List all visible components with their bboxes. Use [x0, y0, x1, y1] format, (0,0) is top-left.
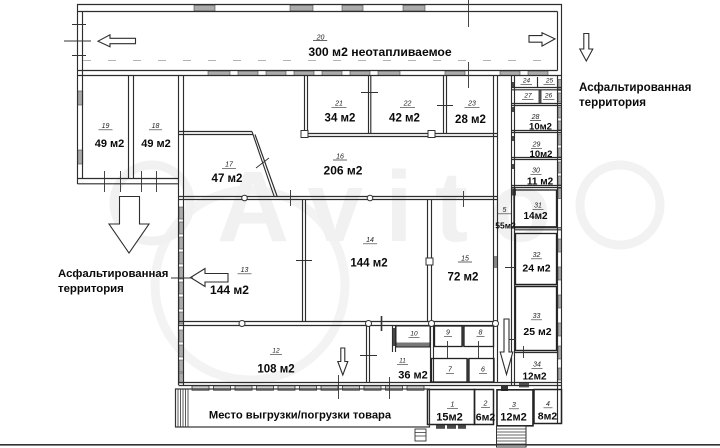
svg-text:10м2: 10м2 — [530, 149, 553, 160]
svg-text:144 м2: 144 м2 — [350, 258, 387, 270]
svg-text:25 м2: 25 м2 — [523, 326, 551, 338]
svg-text:14: 14 — [366, 237, 374, 244]
svg-text:31: 31 — [534, 203, 542, 210]
svg-text:6: 6 — [481, 367, 485, 374]
svg-text:36 м2: 36 м2 — [398, 370, 428, 382]
svg-text:19: 19 — [102, 123, 110, 130]
svg-text:23: 23 — [467, 101, 476, 108]
svg-text:1: 1 — [451, 402, 455, 409]
svg-text:16: 16 — [336, 153, 344, 160]
svg-text:206 м2: 206 м2 — [324, 164, 363, 178]
svg-text:28: 28 — [531, 114, 540, 121]
svg-text:28 м2: 28 м2 — [455, 114, 486, 126]
svg-text:11: 11 — [399, 358, 406, 365]
svg-text:10м2: 10м2 — [529, 122, 552, 133]
svg-text:55м2: 55м2 — [495, 221, 516, 231]
svg-text:33: 33 — [533, 313, 541, 320]
svg-text:4: 4 — [546, 401, 550, 408]
svg-text:144 м2: 144 м2 — [210, 283, 249, 297]
svg-text:9: 9 — [446, 330, 450, 337]
svg-text:8м2: 8м2 — [538, 411, 558, 423]
svg-text:30: 30 — [532, 168, 540, 175]
svg-text:Асфальтированная: Асфальтированная — [58, 268, 168, 280]
svg-text:25: 25 — [545, 78, 554, 85]
svg-text:34: 34 — [533, 362, 541, 369]
svg-text:12м2: 12м2 — [500, 412, 527, 424]
svg-text:27: 27 — [523, 93, 532, 100]
svg-text:29: 29 — [532, 142, 541, 149]
svg-text:12м2: 12м2 — [522, 372, 547, 383]
svg-text:18: 18 — [152, 123, 160, 130]
svg-text:34 м2: 34 м2 — [325, 113, 356, 125]
svg-text:47 м2: 47 м2 — [212, 173, 243, 185]
svg-text:20: 20 — [316, 35, 325, 42]
svg-text:6м2: 6м2 — [476, 412, 496, 424]
svg-text:8: 8 — [479, 330, 483, 337]
svg-text:17: 17 — [225, 162, 234, 169]
svg-text:24: 24 — [522, 78, 531, 85]
svg-text:территория: территория — [58, 283, 124, 295]
svg-text:15: 15 — [461, 255, 469, 262]
svg-text:3: 3 — [512, 402, 516, 409]
svg-text:Место выгрузки/погрузки товара: Место выгрузки/погрузки товара — [209, 410, 392, 422]
svg-text:2: 2 — [483, 401, 488, 408]
svg-text:108 м2: 108 м2 — [257, 364, 294, 376]
svg-text:10: 10 — [410, 331, 418, 338]
svg-text:42 м2: 42 м2 — [389, 113, 420, 125]
svg-text:12: 12 — [272, 348, 280, 355]
svg-text:21: 21 — [334, 101, 343, 108]
svg-text:14м2: 14м2 — [523, 211, 548, 222]
svg-text:49 м2: 49 м2 — [141, 138, 171, 150]
svg-text:5: 5 — [503, 207, 507, 214]
svg-text:11 м2: 11 м2 — [527, 177, 554, 188]
svg-text:49 м2: 49 м2 — [95, 138, 125, 150]
svg-text:24 м2: 24 м2 — [522, 263, 550, 275]
svg-text:Avito: Avito — [217, 151, 573, 263]
svg-text:территория: территория — [579, 96, 646, 109]
svg-text:Асфальтированная: Асфальтированная — [579, 81, 691, 94]
svg-text:13: 13 — [241, 267, 249, 274]
svg-text:26: 26 — [544, 93, 553, 100]
svg-text:22: 22 — [403, 101, 412, 108]
svg-text:32: 32 — [533, 252, 541, 259]
svg-text:72 м2: 72 м2 — [448, 272, 479, 284]
svg-text:15м2: 15м2 — [436, 412, 463, 424]
svg-text:300 м2 неотапливаемое: 300 м2 неотапливаемое — [308, 45, 452, 59]
